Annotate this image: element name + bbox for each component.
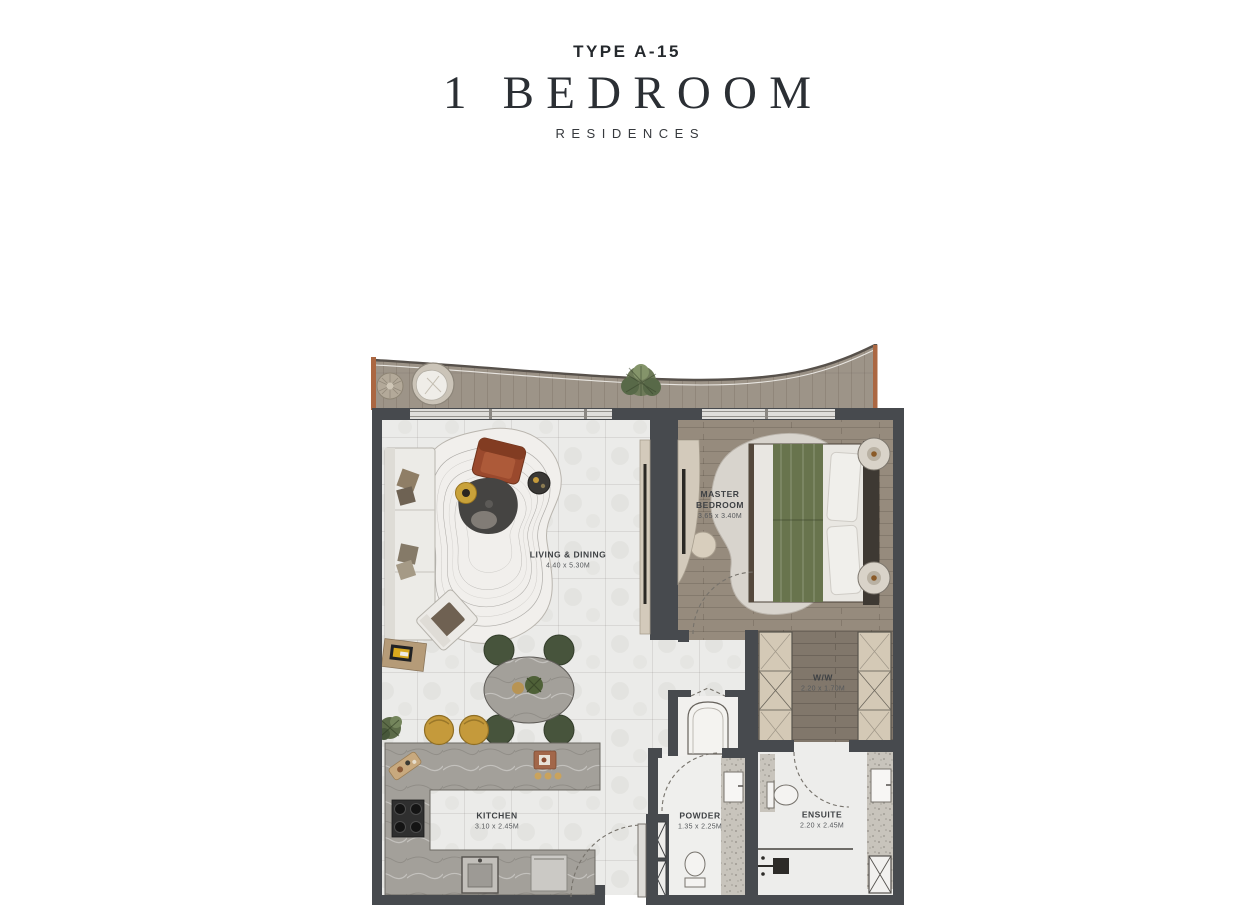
balcony-plant — [621, 364, 661, 396]
powder-toilet — [685, 852, 705, 887]
powder-vanity — [724, 772, 743, 802]
wardrobe-right — [858, 632, 891, 750]
cooktop — [392, 800, 424, 837]
balcony-pouf — [377, 373, 403, 399]
bedroom-window — [702, 409, 835, 419]
wardrobe-left — [759, 632, 792, 750]
balcony-trim-left — [371, 357, 376, 410]
page-subtitle: RESIDENCES — [0, 126, 1254, 141]
balcony — [371, 344, 878, 410]
side-table-books — [381, 639, 426, 672]
gold-side-table — [456, 483, 477, 504]
living-window — [410, 409, 612, 419]
title-block: TYPE A-15 1 BEDROOM RESIDENCES — [0, 42, 1254, 141]
laundry-basin — [688, 702, 728, 754]
small-dark-table — [528, 472, 550, 494]
unit-type-label: TYPE A-15 — [0, 42, 1254, 62]
kitchen-sink — [462, 857, 498, 893]
nightstand-top — [858, 438, 890, 470]
balcony-chair — [412, 363, 454, 405]
entry-door-leaf — [638, 824, 646, 897]
nightstand-bottom — [858, 562, 890, 594]
ensuite-shaft — [869, 856, 891, 893]
ensuite-vanity — [871, 769, 891, 802]
floor-plan-drawing — [371, 344, 905, 906]
page-title: 1 BEDROOM — [0, 70, 1254, 117]
dishwasher — [531, 855, 567, 891]
floor-plan: LIVING & DINING 4.40 x 5.30M MASTER BEDR… — [371, 344, 905, 906]
balcony-trim-right — [873, 345, 878, 410]
brochure-page: TYPE A-15 1 BEDROOM RESIDENCES — [0, 0, 1254, 911]
